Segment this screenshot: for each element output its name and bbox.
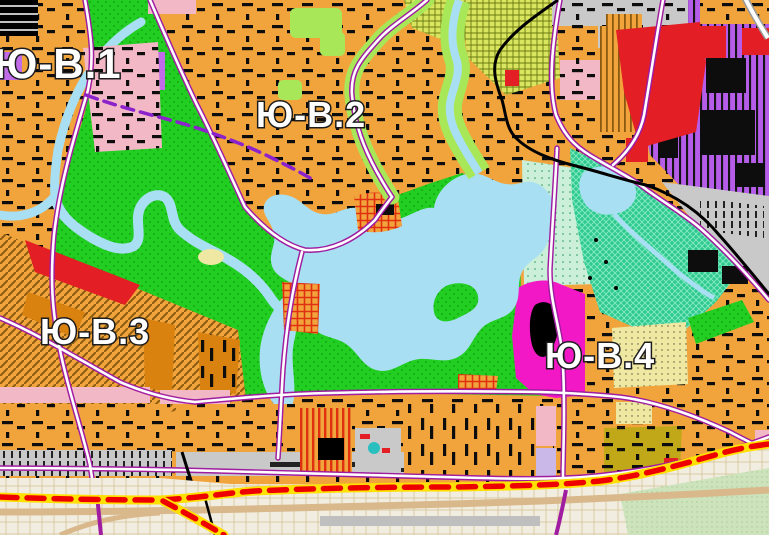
industrial-building bbox=[700, 110, 755, 155]
red-zone-small bbox=[698, 26, 726, 58]
pink-mini-block bbox=[536, 406, 556, 446]
teal-feature bbox=[368, 442, 380, 454]
tree-dot bbox=[588, 276, 592, 280]
pink-block-texture bbox=[560, 60, 600, 100]
block-texture bbox=[404, 404, 554, 476]
tree-dot bbox=[594, 238, 598, 242]
red-building bbox=[360, 434, 370, 439]
green-patch bbox=[320, 32, 345, 56]
red-building bbox=[382, 448, 390, 453]
city-master-plan-map: Ю-В.1 Ю-В.2 Ю-В.3 Ю-В.4 bbox=[0, 0, 769, 535]
large-building bbox=[318, 438, 344, 460]
industrial-building bbox=[706, 58, 746, 93]
map-canvas: Ю-В.1 Ю-В.2 Ю-В.3 Ю-В.4 bbox=[0, 0, 769, 535]
district-label-yv4: Ю-В.4 bbox=[545, 335, 655, 376]
industrial-building bbox=[735, 163, 765, 187]
lavender-block bbox=[536, 448, 556, 476]
dark-orange-texture bbox=[198, 332, 240, 394]
river-island bbox=[198, 249, 224, 265]
pale-yellow-block bbox=[616, 402, 652, 424]
outside-rail-strip bbox=[320, 516, 540, 526]
district-label-yv3: Ю-В.3 bbox=[40, 311, 150, 352]
tree-dot bbox=[604, 260, 608, 264]
building bbox=[688, 250, 718, 272]
red-building bbox=[505, 70, 519, 86]
district-label-yv2: Ю-В.2 bbox=[256, 94, 366, 135]
tree-dot bbox=[614, 286, 618, 290]
district-label-yv1: Ю-В.1 bbox=[0, 40, 122, 87]
